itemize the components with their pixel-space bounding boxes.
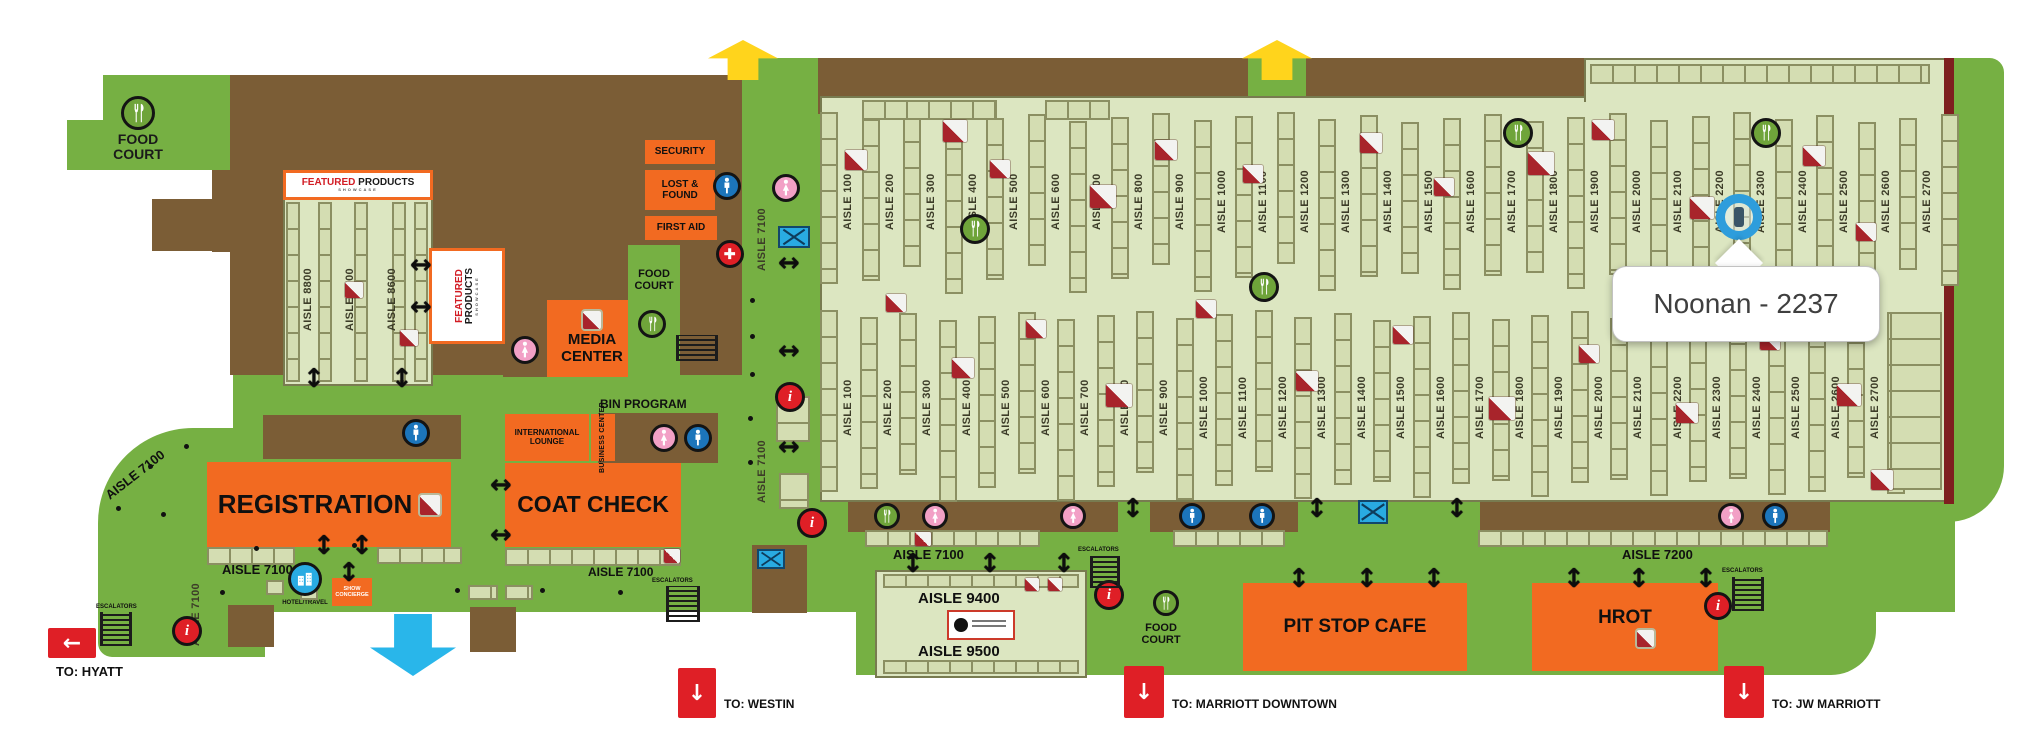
booth-column [1808, 320, 1826, 492]
page-curl-marker [1676, 403, 1698, 423]
aisle-label: AISLE 1400 [1354, 366, 1370, 450]
page-curl-marker [1048, 578, 1062, 591]
exit-jw-label: TO: JW MARRIOTT [1772, 698, 1880, 711]
food-court-south-label: FOOD COURT [1130, 622, 1192, 646]
hotel-travel-label: HOTEL/TRAVEL [268, 600, 342, 607]
booth-strip [207, 547, 295, 565]
booth-column [1373, 320, 1391, 482]
food-court-mid-label: FOOD COURT [630, 268, 678, 292]
page-curl-marker [845, 150, 867, 170]
crossed-box-icon [1358, 500, 1388, 524]
booth-column [1567, 117, 1585, 289]
south-wall-b [1150, 498, 1298, 532]
booth-strip [505, 548, 681, 566]
aisle-label: AISLE 1700 [1504, 160, 1520, 244]
escalators-label: ESCALATORS [96, 604, 137, 611]
aisle-label: AISLE 2600 [1828, 366, 1844, 450]
page-curl-icon [583, 311, 601, 329]
escalator-icon [1732, 577, 1764, 611]
info-icon: i [1704, 592, 1732, 620]
booth-column [820, 310, 838, 492]
exit-westin-label: TO: WESTIN [724, 698, 794, 711]
booth-column [1277, 112, 1295, 264]
booth-strip [1478, 530, 1828, 547]
aisle-label: AISLE 100 [840, 160, 856, 244]
vertical-two-way-arrow: ↕ [1288, 566, 1314, 594]
featured-line3: SHOWCASE [475, 261, 479, 331]
vertical-two-way-arrow: ↕ [1356, 566, 1382, 594]
vertical-two-way-arrow: ↕ [1306, 496, 1332, 524]
first-aid-office: FIRST AID [645, 216, 717, 240]
page-curl-marker [1026, 320, 1046, 338]
aisle-7100-label: AISLE 7100 [222, 563, 293, 577]
page-curl-marker [1871, 470, 1893, 490]
booth-column [860, 317, 878, 489]
page-curl-marker [1592, 120, 1614, 140]
horizontal-two-way-arrow: ↔ [490, 522, 520, 546]
way-dot [184, 444, 189, 449]
booth-marker[interactable] [1716, 194, 1762, 240]
aisle-label: AISLE 1200 [1275, 366, 1291, 450]
booth-column [862, 119, 880, 281]
booth-column [1526, 121, 1544, 273]
aisle-label: AISLE 600 [1048, 160, 1064, 244]
registration-wall [263, 415, 461, 459]
horizontal-two-way-arrow: ↔ [490, 472, 520, 496]
security-office: SECURITY [645, 140, 715, 164]
international-lounge: INTERNATIONAL LOUNGE [505, 414, 589, 461]
booth-strip [865, 530, 1040, 547]
booth-column [945, 122, 963, 294]
aisle-label: AISLE 200 [882, 160, 898, 244]
pit-stop-cafe-label: PIT STOP CAFE [1284, 616, 1427, 637]
page-curl-marker [1528, 152, 1554, 175]
exit-arrow-hyatt: ← [48, 628, 96, 658]
international-lounge-label: INTERNATIONAL LOUNGE [512, 429, 582, 447]
food-icon [960, 214, 990, 244]
booth-column [903, 115, 921, 267]
security-label: SECURITY [655, 146, 706, 157]
vertical-two-way-arrow: ↕ [391, 366, 417, 394]
booth-strip [266, 580, 284, 595]
expo-floor-map: SECURITY LOST & FOUND FIRST AID MEDIA CE… [0, 0, 2017, 744]
hrot-label: HROT [1598, 607, 1652, 628]
exit-arrow-westin: ↓ [678, 668, 716, 718]
page-curl-marker [664, 549, 680, 563]
booth-column [986, 118, 1004, 280]
small-structure [470, 607, 516, 652]
vertical-two-way-arrow: ↕ [1628, 566, 1654, 594]
page-curl-marker [400, 330, 418, 346]
food-icon [1249, 272, 1279, 302]
logo-lines [972, 620, 1006, 630]
bin-program-label: BIN PROGRAM [600, 398, 687, 411]
aisle-label: AISLE 2100 [1630, 366, 1646, 450]
aisle-9400-label: AISLE 9400 [918, 591, 1000, 608]
womens-restroom-icon [1718, 503, 1744, 529]
way-dot [618, 590, 623, 595]
vertical-two-way-arrow: ↕ [902, 551, 928, 579]
info-icon: i [172, 616, 202, 646]
aisle-label: AISLE 2100 [1670, 160, 1686, 244]
aisle-label: AISLE 1500 [1393, 366, 1409, 450]
aisle-label: AISLE 2700 [1867, 366, 1883, 450]
media-center: MEDIA CENTER [547, 300, 637, 377]
business-center: BUSINESS CENTER [591, 414, 615, 461]
womens-restroom-icon [511, 336, 539, 364]
page-curl-marker [1856, 223, 1876, 241]
page-curl-marker [1803, 146, 1825, 166]
page-curl-marker [1090, 185, 1116, 208]
coat-check: COAT CHECK [505, 463, 681, 547]
vertical-two-way-arrow: ↕ [979, 551, 1005, 579]
vertical-two-way-arrow: ↕ [1563, 566, 1589, 594]
page-curl-marker [886, 294, 906, 312]
mens-restroom-icon [713, 172, 741, 200]
booth-column [978, 316, 996, 488]
booth-column [286, 202, 300, 382]
page-curl-marker [1434, 178, 1454, 196]
page-curl-marker [943, 120, 967, 142]
booth-strip [1173, 530, 1285, 547]
mens-restroom-icon [1179, 503, 1205, 529]
page-curl-marker [345, 282, 363, 298]
aisle-label: AISLE 1400 [1380, 160, 1396, 244]
booth-column [1899, 118, 1917, 270]
booth-strip [1590, 64, 1930, 84]
vertical-two-way-arrow: ↕ [313, 533, 339, 561]
aisle-label: AISLE 1000 [1196, 366, 1212, 450]
womens-restroom-icon [1060, 503, 1086, 529]
aisle-label: AISLE 2700 [1919, 160, 1935, 244]
way-dot [750, 372, 755, 377]
booth-column [1069, 121, 1087, 293]
aisle-label: AISLE 1500 [1421, 160, 1437, 244]
aisle-label: AISLE 8700 [342, 240, 358, 360]
aisle-7100-label: AISLE 7100 [588, 566, 653, 579]
info-icon: i [775, 382, 805, 412]
escalators-label: ESCALATORS [652, 578, 693, 585]
page-curl-marker [1196, 300, 1216, 318]
booth-column [1235, 116, 1253, 278]
mens-restroom-icon [1762, 503, 1788, 529]
aisle-label: AISLE 2000 [1629, 160, 1645, 244]
escalator-icon [1090, 556, 1120, 588]
page-curl-marker [915, 532, 931, 546]
logo-circle [954, 618, 968, 632]
way-dot [750, 334, 755, 339]
down-arrow-south [370, 614, 456, 676]
vertical-two-way-arrow: ↕ [1122, 496, 1148, 524]
booth-column [1136, 311, 1154, 473]
aisle-label: AISLE 2600 [1878, 160, 1894, 244]
aisle-label: AISLE 8600 [384, 240, 400, 360]
horizontal-two-way-arrow: ↔ [778, 250, 808, 274]
crossed-box-icon [757, 549, 785, 569]
booth-column [899, 313, 917, 475]
featured-products-banner-vertical: FEATURED PRODUCTS SHOWCASE [429, 248, 505, 344]
way-dot [148, 464, 153, 469]
booth-column [1531, 315, 1549, 497]
way-dot [161, 512, 166, 517]
aisle-label: AISLE 100 [840, 366, 856, 450]
booth-strip [505, 585, 533, 600]
west-building-stub [212, 170, 232, 252]
page-curl-marker [1360, 133, 1382, 153]
booth-column [1484, 114, 1502, 276]
booth-column [1334, 313, 1352, 485]
aisle-7200-label: AISLE 7200 [1622, 548, 1693, 562]
way-dot [352, 543, 357, 548]
womens-restroom-icon [650, 424, 678, 452]
page-curl-marker [1489, 397, 1515, 420]
aisle-label: AISLE 800 [1117, 366, 1133, 450]
page-curl-marker [1106, 384, 1132, 407]
escalator-icon [676, 335, 718, 361]
aisle-label: AISLE 2500 [1836, 160, 1852, 244]
booth-strip [468, 585, 498, 600]
lost-found-label: LOST & FOUND [655, 179, 705, 201]
aisle-label: AISLE 1100 [1235, 366, 1251, 450]
food-icon [638, 310, 666, 338]
page-curl-marker [1243, 165, 1263, 183]
booth-strip [883, 660, 1079, 674]
booth-column [1443, 118, 1461, 290]
hotel-travel-icon [288, 562, 322, 596]
vertical-two-way-arrow: ↕ [1446, 496, 1472, 524]
aisle-label: AISLE 900 [1172, 160, 1188, 244]
booth-column [1452, 312, 1470, 484]
booth-column [1057, 319, 1075, 501]
hrot-restaurant: HROT [1532, 583, 1718, 671]
booth-callout[interactable]: Noonan - 2237 [1612, 266, 1880, 342]
booth-column [939, 320, 957, 502]
way-dot [116, 506, 121, 511]
aisle-label: AISLE 1900 [1587, 160, 1603, 244]
way-dot [455, 588, 460, 593]
booth-column [1152, 113, 1170, 265]
womens-restroom-icon [772, 174, 800, 202]
page-curl-icon [1637, 630, 1654, 647]
first-aid-icon [716, 240, 744, 268]
exit-arrow-marriott: ↓ [1124, 666, 1164, 718]
booth-column [1215, 314, 1233, 486]
booth-strip [1045, 100, 1110, 120]
crossed-box-icon [778, 226, 810, 248]
food-icon [874, 503, 900, 529]
food-court-nw-label: FOOD COURT [98, 132, 178, 163]
aisle-9500-label: AISLE 9500 [918, 644, 1000, 661]
horizontal-two-way-arrow: ↔ [410, 294, 440, 318]
booth-column [1816, 115, 1834, 287]
escalators-label: ESCALATORS [1078, 547, 1119, 554]
aisle-label: AISLE 1900 [1551, 366, 1567, 450]
mens-restroom-icon [1249, 503, 1275, 529]
aisle-label: AISLE 1600 [1463, 160, 1479, 244]
vertical-two-way-arrow: ↕ [1053, 551, 1079, 579]
horizontal-two-way-arrow: ↔ [778, 338, 808, 362]
page-curl-marker [1579, 345, 1599, 363]
page-curl-marker [1690, 197, 1714, 219]
aisle-label: AISLE 1600 [1433, 366, 1449, 450]
small-structure [228, 605, 274, 647]
booth-strip [862, 100, 997, 120]
aisle-label: AISLE 2400 [1795, 160, 1811, 244]
info-icon: i [797, 508, 827, 538]
aisle-label: AISLE 600 [1038, 366, 1054, 450]
aisle-label: AISLE 700 [1077, 366, 1093, 450]
aisle-label: AISLE 2400 [1749, 366, 1765, 450]
simulator-logo [947, 610, 1015, 640]
vertical-two-way-arrow: ↕ [1695, 566, 1721, 594]
aisle-label: AISLE 1000 [1214, 160, 1230, 244]
aisle-label: AISLE 1300 [1338, 160, 1354, 244]
page-curl-marker [990, 160, 1010, 178]
page-curl-icon [420, 495, 440, 515]
page-curl-marker [1025, 578, 1039, 591]
featured-products-banner: FEATURED PRODUCTS SHOWCASE [283, 170, 433, 200]
way-dot [540, 588, 545, 593]
first-aid-label: FIRST AID [657, 222, 706, 233]
booth-column [1255, 310, 1273, 472]
page-curl-marker [952, 358, 974, 378]
page-curl-marker [1393, 326, 1413, 344]
vertical-two-way-arrow: ↕ [303, 366, 329, 394]
page-curl-marker [1296, 371, 1318, 391]
horizontal-two-way-arrow: ↔ [410, 252, 440, 276]
page-curl-marker [1155, 140, 1177, 160]
booth-column [1571, 311, 1589, 483]
horizontal-two-way-arrow: ↔ [778, 434, 808, 458]
aisle-7100-vertical-label: AISLE 7100 [754, 202, 770, 278]
aisle-label: AISLE 800 [1131, 160, 1147, 244]
booth-column [820, 112, 838, 284]
booth-column [1294, 317, 1312, 499]
booth-column [1890, 312, 1942, 490]
aisle-label: AISLE 2000 [1591, 366, 1607, 450]
booth-column [318, 202, 332, 382]
booth-strip [377, 547, 462, 564]
booth-column [1401, 122, 1419, 274]
exit-hyatt-label: TO: HYATT [56, 665, 123, 679]
escalator-icon [100, 612, 132, 646]
way-dot [748, 460, 753, 465]
womens-restroom-icon [922, 503, 948, 529]
booth-column [1858, 122, 1876, 284]
exit-marriott-label: TO: MARRIOTT DOWNTOWN [1172, 698, 1337, 711]
media-center-label: MEDIA CENTER [552, 332, 632, 366]
callout-text: Noonan - 2237 [1653, 288, 1838, 320]
aisle-label: AISLE 300 [919, 366, 935, 450]
mens-restroom-icon [684, 424, 712, 452]
escalator-icon [666, 586, 700, 622]
exit-arrow-jw: ↓ [1724, 666, 1764, 718]
aisle-label: AISLE 8800 [300, 240, 316, 360]
lost-and-found: LOST & FOUND [645, 170, 715, 210]
booth-column [779, 473, 809, 509]
page-curl-marker [1837, 384, 1861, 406]
pit-stop-cafe: PIT STOP CAFE [1243, 583, 1467, 671]
way-dot [748, 416, 753, 421]
aisle-label: AISLE 2300 [1709, 366, 1725, 450]
aisle-label: AISLE 500 [998, 366, 1014, 450]
booth-column [1650, 120, 1668, 272]
featured-line3: SHOWCASE [302, 188, 415, 192]
aisle-label: AISLE 200 [880, 366, 896, 450]
way-dot [254, 546, 259, 551]
business-center-label: BUSINESS CENTER [599, 402, 607, 473]
booth-column [1941, 114, 1959, 286]
marked-booth [1734, 207, 1744, 227]
booth-column [1176, 318, 1194, 500]
aisle-7100-vertical-label: AISLE 7100 [754, 434, 770, 510]
vertical-two-way-arrow: ↕ [338, 560, 364, 588]
booth-column [1028, 114, 1046, 266]
west-building-stub [152, 199, 214, 251]
booth-column [1194, 120, 1212, 292]
aisle-label: AISLE 900 [1156, 366, 1172, 450]
aisle-label: AISLE 1200 [1297, 160, 1313, 244]
booth-column [1413, 316, 1431, 498]
coat-check-label: COAT CHECK [517, 492, 669, 518]
registration-label: REGISTRATION [218, 490, 413, 519]
aisle-label: AISLE 300 [923, 160, 939, 244]
mens-restroom-icon [402, 419, 430, 447]
booth-column [1318, 119, 1336, 291]
vertical-two-way-arrow: ↕ [1423, 566, 1449, 594]
escalators-label: ESCALATORS [1722, 568, 1763, 575]
food-icon [1153, 590, 1179, 616]
aisle-label: AISLE 1700 [1472, 366, 1488, 450]
way-dot [220, 590, 225, 595]
booth-column [1610, 318, 1628, 480]
way-dot [750, 298, 755, 303]
food-icon [121, 96, 155, 130]
food-icon [1751, 118, 1781, 148]
food-icon [1503, 118, 1533, 148]
aisle-label: AISLE 2500 [1788, 366, 1804, 450]
aisle-label: AISLE 400 [959, 366, 975, 450]
